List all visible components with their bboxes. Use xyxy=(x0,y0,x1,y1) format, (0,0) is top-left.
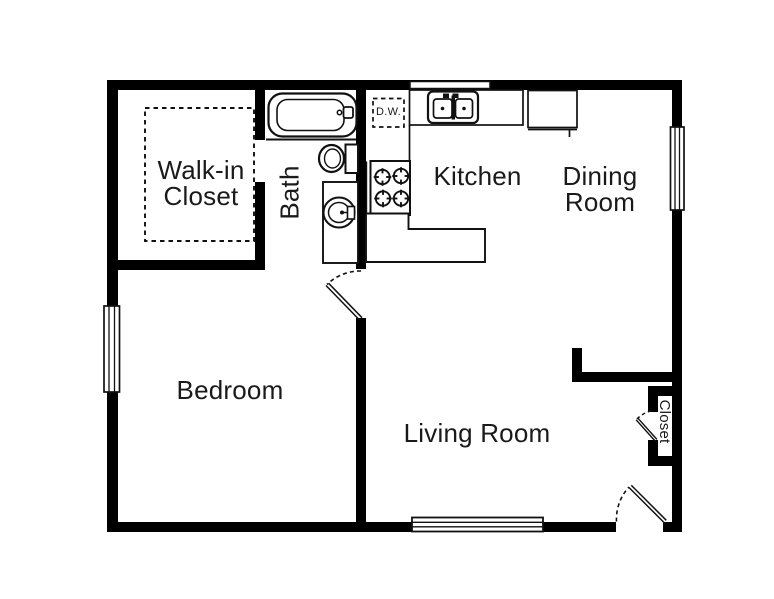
living-room-label: Living Room xyxy=(397,420,557,446)
wall-bottom-right xyxy=(663,522,682,532)
vanity-sink-icon xyxy=(323,182,358,263)
outer-walls xyxy=(107,80,682,532)
wall-top xyxy=(107,80,682,90)
window-bedroom-left xyxy=(104,306,120,392)
bedroom-label: Bedroom xyxy=(160,377,300,403)
window-kitchen-top xyxy=(410,82,490,89)
window-living-bottom xyxy=(412,518,543,532)
bath-label: Bath xyxy=(277,153,304,233)
door-closet xyxy=(636,411,657,442)
dishwasher-label: D.W. xyxy=(369,107,408,118)
windows xyxy=(104,82,684,532)
wall-bedroom-top xyxy=(107,260,265,270)
stove-icon xyxy=(367,161,411,215)
kitchen-label: Kitchen xyxy=(407,163,548,189)
wall-dining-stub xyxy=(572,348,582,374)
window-dining-right xyxy=(671,127,685,210)
door-entry xyxy=(616,485,666,522)
floor-plan-drawing xyxy=(0,0,774,599)
toilet-icon xyxy=(319,145,358,174)
floor-plan: Walk-in Closet Bath Kitchen Dining Room … xyxy=(0,0,774,599)
dining-room-label-line1: Dining xyxy=(530,163,670,189)
walk-in-closet-label-line1: Walk-in xyxy=(131,157,271,183)
door-hall xyxy=(326,271,362,320)
dining-room-label: Dining Room xyxy=(530,163,670,215)
kitchen-sink-icon xyxy=(428,92,478,124)
wall-bedroom-living xyxy=(356,318,366,532)
wall-closet-bottom xyxy=(648,456,674,466)
closet-label: Closet xyxy=(657,391,672,452)
walk-in-closet-label-line2: Closet xyxy=(131,183,271,209)
walk-in-closet-label: Walk-in Closet xyxy=(131,157,271,209)
wall-dining-living xyxy=(572,372,682,382)
refrigerator-icon xyxy=(528,91,577,138)
wall-closet-bath-upper xyxy=(255,88,265,140)
bathtub-icon xyxy=(266,94,357,140)
kitchen-counter-peninsula xyxy=(366,214,485,263)
dining-room-label-line2: Room xyxy=(530,189,670,215)
